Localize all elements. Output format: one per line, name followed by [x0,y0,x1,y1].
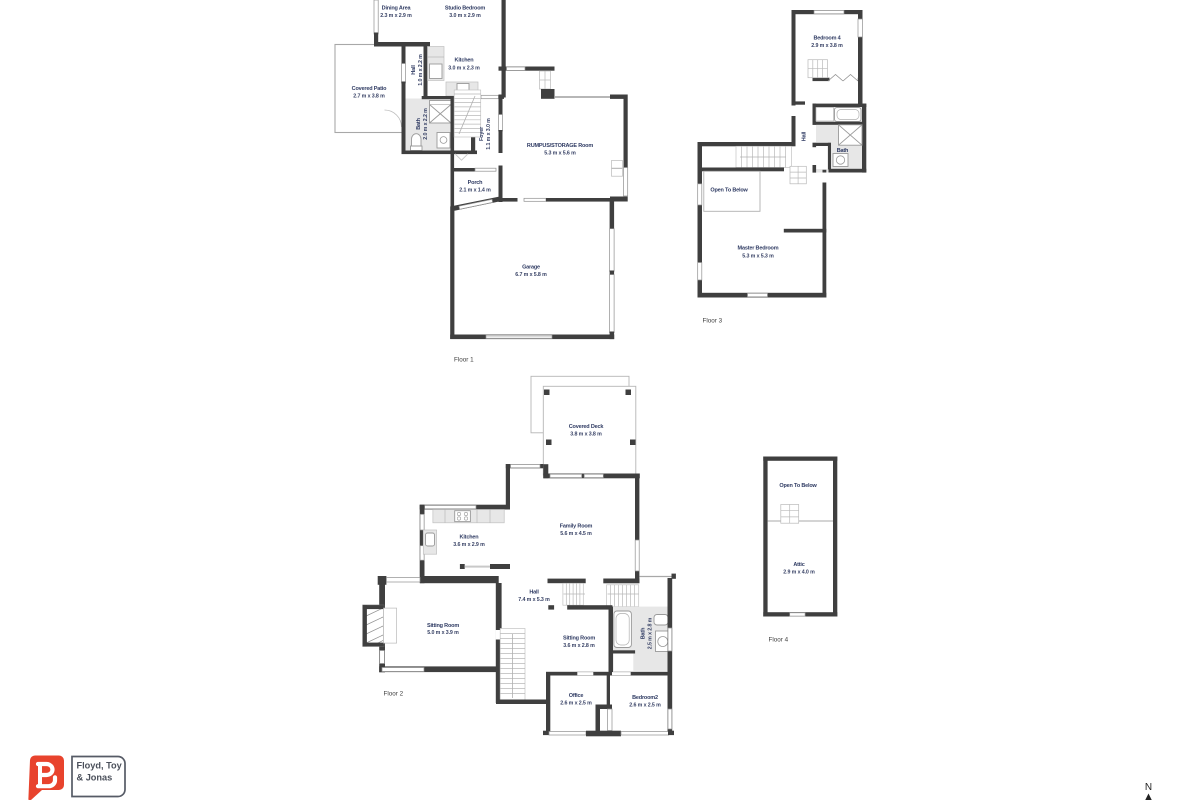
svg-text:Hall: Hall [411,65,417,75]
svg-text:Covered Deck: Covered Deck [569,424,605,430]
svg-text:2.6 m x 2.5 m: 2.6 m x 2.5 m [629,703,661,709]
svg-text:Floor 4: Floor 4 [769,637,789,644]
svg-text:Kitchen: Kitchen [460,535,480,541]
svg-text:3.0 m x 2.9 m: 3.0 m x 2.9 m [449,13,481,19]
svg-text:Sitting Room: Sitting Room [427,623,459,629]
svg-text:Covered Patio: Covered Patio [352,86,387,92]
svg-text:Floor 3: Floor 3 [703,318,723,325]
svg-text:Hall: Hall [802,131,808,141]
svg-text:N: N [1145,782,1152,793]
svg-text:Porch: Porch [468,180,484,186]
svg-text:2.9 m x 4.0 m: 2.9 m x 4.0 m [783,570,815,576]
svg-text:Floor 2: Floor 2 [384,691,404,698]
svg-text:Bath: Bath [416,117,422,129]
svg-text:Studio Bedroom: Studio Bedroom [445,6,486,12]
svg-text:RUMPUS/STORAGE Room: RUMPUS/STORAGE Room [527,143,593,149]
svg-text:6.7 m x 5.8 m: 6.7 m x 5.8 m [515,272,547,278]
svg-text:Open To Below: Open To Below [710,188,748,194]
svg-text:3.8 m x 3.8 m: 3.8 m x 3.8 m [570,432,602,438]
svg-text:2.9 m x 3.8 m: 2.9 m x 3.8 m [811,43,843,49]
svg-text:Sitting Room: Sitting Room [563,636,595,642]
svg-text:5.6 m x 4.5 m: 5.6 m x 4.5 m [560,531,592,537]
svg-text:Family Room: Family Room [560,524,593,530]
svg-text:5.0 m x 3.9 m: 5.0 m x 3.9 m [427,630,459,636]
svg-text:Garage: Garage [522,265,540,271]
svg-text:Open To Below: Open To Below [779,483,817,489]
svg-text:Hall: Hall [529,590,539,596]
svg-text:Office: Office [569,693,584,699]
svg-text:Master Bedroom: Master Bedroom [738,246,779,252]
svg-text:Bedroom 4: Bedroom 4 [813,36,841,42]
svg-text:Floyd, Toy: Floyd, Toy [77,761,123,771]
svg-text:1.0 m x 2.2 m: 1.0 m x 2.2 m [418,54,424,86]
svg-text:Floor 1: Floor 1 [454,357,474,364]
svg-text:3.6 m x 2.9 m: 3.6 m x 2.9 m [453,542,485,548]
svg-text:2.1 m x 1.4 m: 2.1 m x 1.4 m [459,188,491,194]
svg-text:Bath: Bath [837,148,849,154]
svg-text:2.6 m x 2.5 m: 2.6 m x 2.5 m [560,701,592,707]
svg-text:2.0 m x 2.2 m: 2.0 m x 2.2 m [423,108,429,140]
svg-text:7.4 m x 5.3 m: 7.4 m x 5.3 m [518,597,550,603]
svg-text:3.0 m x 2.3 m: 3.0 m x 2.3 m [448,66,480,72]
svg-text:5.3 m x 5.3 m: 5.3 m x 5.3 m [742,253,774,259]
svg-text:2.7 m x 3.8 m: 2.7 m x 3.8 m [353,94,385,100]
svg-text:Bath: Bath [641,627,647,639]
svg-text:Foyer: Foyer [479,126,485,141]
svg-text:3.6 m x 2.8 m: 3.6 m x 2.8 m [563,643,595,649]
svg-text:Attic: Attic [793,562,804,568]
svg-text:2.3 m x 2.9 m: 2.3 m x 2.9 m [380,13,412,19]
svg-text:1.1 m x 3.0 m: 1.1 m x 3.0 m [486,118,492,150]
svg-text:2.5 m x 2.8 m: 2.5 m x 2.8 m [647,617,653,649]
svg-text:5.3 m x 5.6 m: 5.3 m x 5.6 m [544,151,576,157]
svg-text:Kitchen: Kitchen [455,58,475,64]
svg-text:& Jonas: & Jonas [77,773,113,783]
svg-text:Bedroom2: Bedroom2 [632,695,658,701]
svg-text:Dining Area: Dining Area [382,6,412,12]
